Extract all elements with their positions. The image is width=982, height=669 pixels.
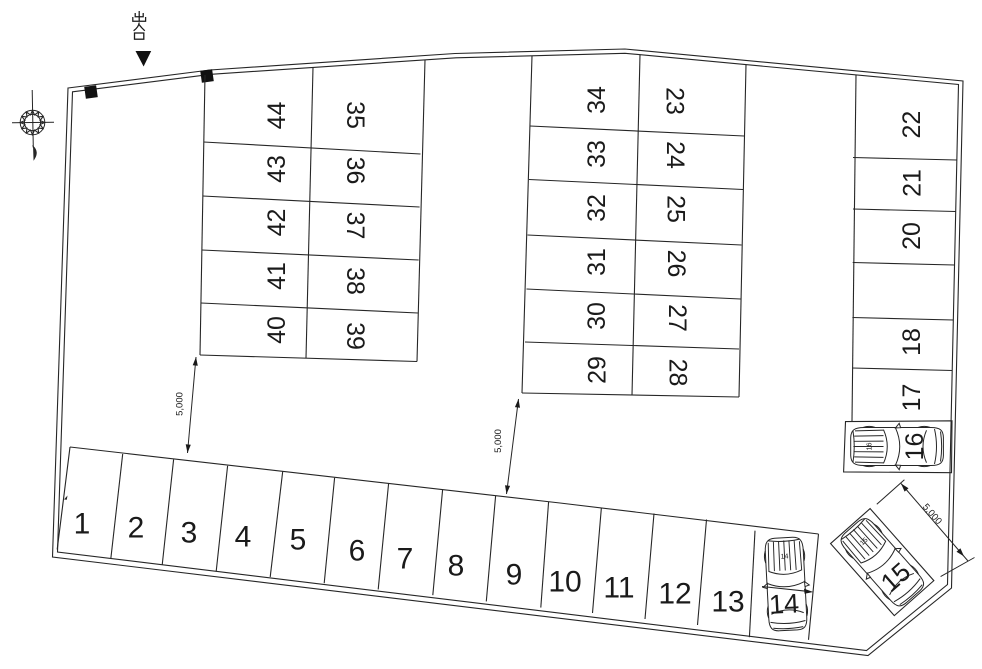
svg-text:23: 23	[661, 87, 689, 115]
svg-text:18: 18	[898, 328, 926, 356]
svg-text:22: 22	[898, 111, 926, 139]
svg-text:40: 40	[263, 316, 291, 344]
svg-text:42: 42	[263, 209, 291, 237]
svg-text:4: 4	[235, 521, 252, 554]
svg-text:21: 21	[899, 169, 927, 197]
svg-text:16: 16	[901, 433, 929, 461]
svg-text:8: 8	[448, 550, 465, 583]
svg-text:27: 27	[663, 304, 691, 332]
svg-text:20: 20	[898, 222, 926, 250]
svg-text:31: 31	[583, 248, 611, 276]
svg-text:2: 2	[128, 512, 145, 545]
svg-text:41: 41	[263, 262, 291, 290]
svg-text:14: 14	[781, 553, 789, 560]
svg-text:30: 30	[583, 302, 611, 330]
svg-text:17: 17	[898, 384, 926, 412]
svg-text:1: 1	[74, 508, 91, 541]
svg-text:5,000: 5,000	[175, 392, 186, 416]
svg-text:35: 35	[341, 101, 369, 129]
svg-text:29: 29	[584, 356, 612, 384]
svg-text:43: 43	[263, 155, 291, 183]
svg-text:38: 38	[341, 267, 369, 295]
svg-text:12: 12	[658, 578, 691, 611]
svg-text:28: 28	[664, 359, 692, 387]
svg-text:14: 14	[768, 588, 800, 620]
svg-text:24: 24	[661, 141, 689, 169]
svg-text:6: 6	[349, 535, 366, 568]
svg-text:33: 33	[583, 140, 611, 168]
svg-text:5,000: 5,000	[493, 429, 504, 453]
svg-text:3: 3	[181, 517, 198, 550]
svg-text:44: 44	[263, 102, 291, 130]
svg-text:5: 5	[290, 524, 307, 557]
svg-text:32: 32	[583, 194, 611, 222]
svg-text:37: 37	[341, 212, 369, 240]
svg-text:26: 26	[662, 250, 690, 278]
svg-text:13: 13	[711, 586, 744, 619]
svg-text:16: 16	[867, 443, 874, 451]
svg-text:11: 11	[603, 572, 634, 605]
svg-text:39: 39	[341, 322, 369, 350]
svg-text:36: 36	[341, 157, 369, 185]
svg-text:7: 7	[397, 543, 414, 576]
svg-text:25: 25	[662, 195, 690, 223]
svg-text:34: 34	[583, 86, 611, 114]
svg-text:9: 9	[506, 559, 523, 592]
svg-text:10: 10	[548, 566, 581, 599]
